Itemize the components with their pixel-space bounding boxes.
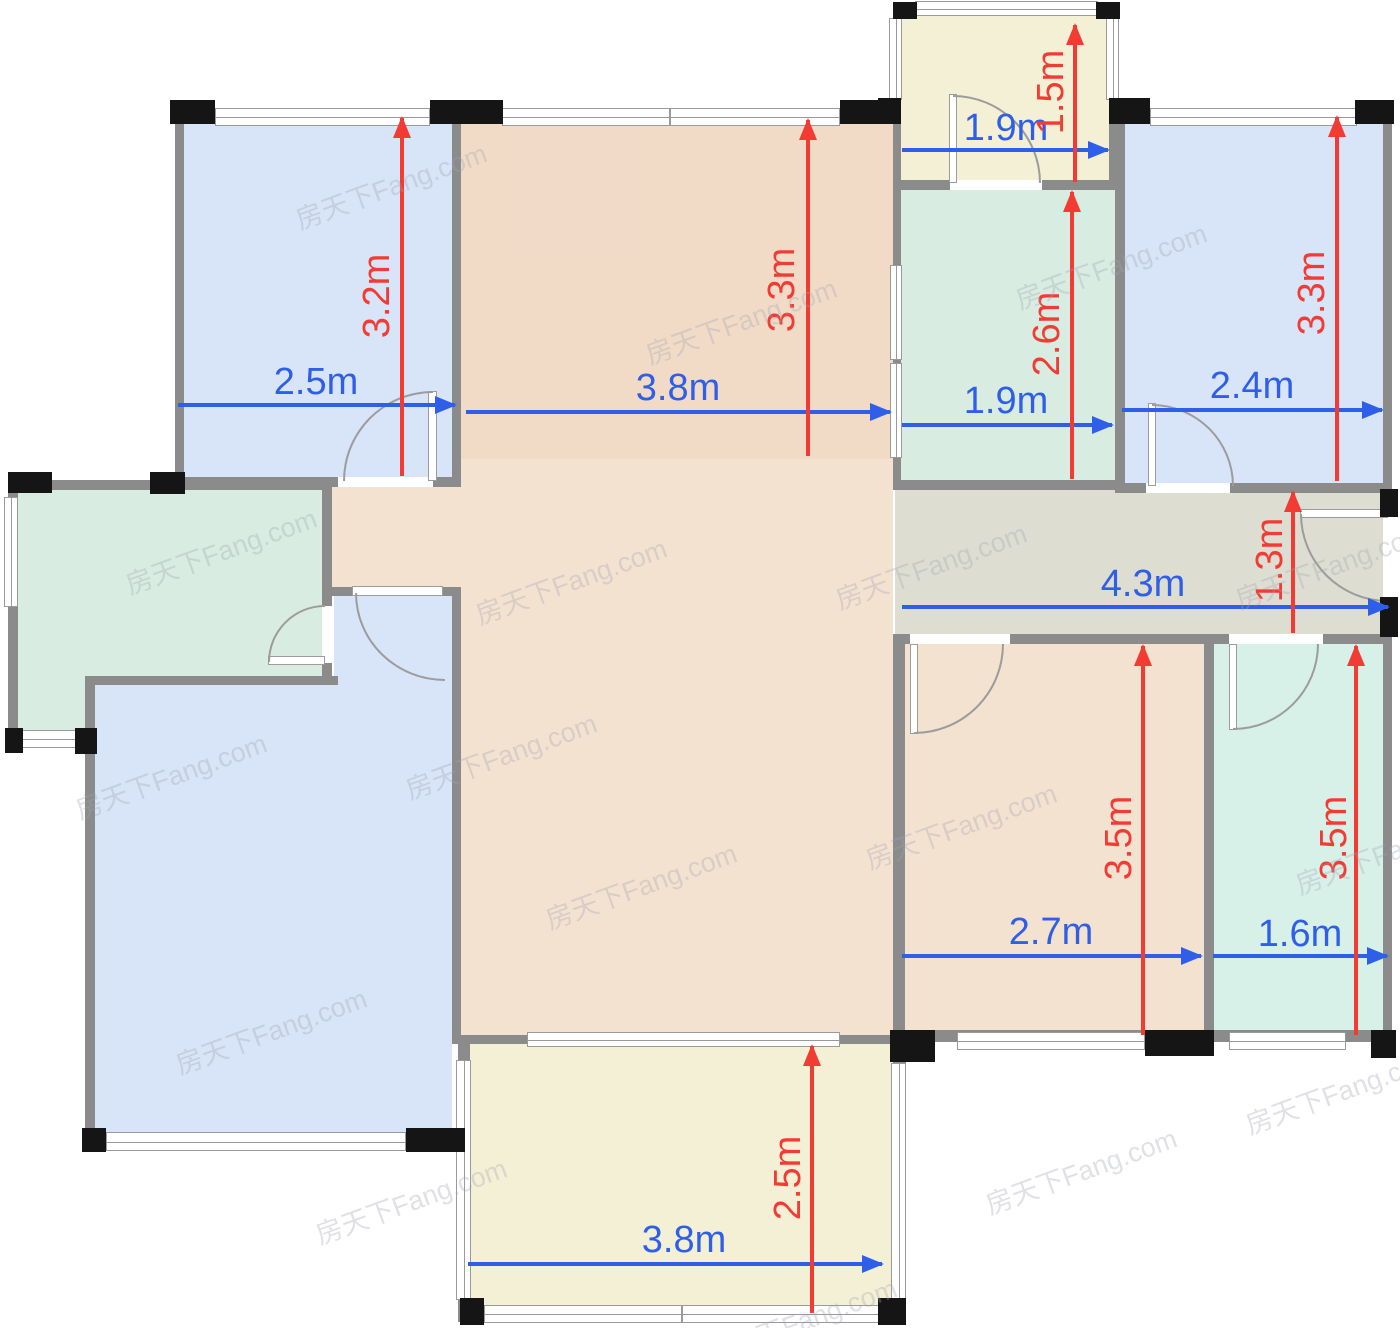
dim-label-bedroom-top-right-width: 2.4m (1210, 367, 1294, 405)
dim-label-bathroom-height: 2.6m (1028, 292, 1066, 376)
window (957, 1032, 1145, 1050)
dim-label-room-bottom-right-height: 3.5m (1315, 796, 1353, 880)
pillar (1145, 1030, 1214, 1056)
window (1106, 18, 1119, 100)
room-bedroom-bottom-left (95, 685, 452, 1137)
dim-arrow-living-height (806, 120, 810, 456)
dim-label-bedroom-bottom-middle-height: 3.5m (1100, 796, 1138, 880)
dim-label-bathroom-width: 1.9m (964, 382, 1048, 420)
pillar (878, 98, 901, 124)
window (1229, 1032, 1346, 1050)
dim-arrow-hallway-width (902, 605, 1388, 609)
dim-label-hallway-height: 1.3m (1251, 518, 1289, 602)
pillar (878, 1298, 906, 1325)
wall (1115, 113, 1125, 493)
window (4, 497, 18, 607)
wall (175, 113, 184, 486)
wall (452, 587, 461, 1044)
dim-arrow-living-width (466, 410, 890, 414)
dim-label-balcony-bottom-height: 2.5m (769, 1136, 807, 1220)
pillar (170, 100, 215, 124)
door-opening (910, 634, 1010, 644)
pillar (460, 1298, 484, 1325)
dim-label-balcony-top-height: 1.5m (1032, 50, 1070, 134)
pillar (890, 1030, 935, 1062)
pillar (430, 100, 503, 124)
dim-label-living-width: 3.8m (636, 369, 720, 407)
dim-label-bedroom-top-right-height: 3.3m (1293, 251, 1331, 335)
dim-arrow-bedroom-top-left-width (178, 403, 455, 407)
window (915, 1, 1098, 16)
wall (1204, 643, 1214, 1030)
dim-label-bedroom-top-left-height: 3.2m (358, 254, 396, 338)
dim-label-living-height: 3.3m (763, 248, 801, 332)
pillar (1371, 1030, 1396, 1058)
dim-label-hallway-width: 4.3m (1101, 565, 1185, 603)
pillar (82, 1128, 106, 1152)
dim-arrow-bedroom-top-left-height (400, 118, 404, 476)
dim-arrow-bedroom-bottom-middle-width (902, 954, 1201, 958)
window (527, 1032, 840, 1047)
wall (85, 676, 338, 685)
dim-label-room-bottom-right-width: 1.6m (1258, 915, 1342, 953)
floor-plan: 房天下Fang.com房天下Fang.com房天下Fang.com房天下Fang… (0, 0, 1400, 1328)
wall (1383, 113, 1392, 493)
window (891, 1063, 906, 1300)
dim-arrow-bedroom-top-right-height (1335, 117, 1339, 481)
window (890, 265, 902, 360)
window (502, 108, 670, 126)
dim-arrow-hallway-height (1291, 492, 1295, 633)
dim-arrow-balcony-top-height (1073, 25, 1077, 182)
pillar (1355, 100, 1394, 124)
door-opening (1229, 634, 1323, 644)
window (889, 18, 902, 100)
room-bathroom (901, 190, 1115, 480)
wall (452, 113, 461, 487)
wall (893, 634, 905, 1040)
pillar (150, 472, 185, 494)
wall (893, 480, 1115, 490)
window (1150, 108, 1357, 126)
dim-label-bedroom-top-left-width: 2.5m (274, 363, 358, 401)
dim-arrow-bathroom-height (1070, 192, 1074, 479)
dim-arrow-bedroom-top-right-width (1122, 408, 1382, 412)
dim-label-balcony-bottom-width: 3.8m (642, 1221, 726, 1259)
pillar (75, 728, 97, 754)
wall (1383, 637, 1392, 1032)
pillar (5, 728, 23, 753)
window (106, 1132, 406, 1151)
window (484, 1305, 682, 1323)
watermark: 房天下Fang.com (979, 1117, 1181, 1222)
pillar (1380, 489, 1398, 517)
dim-arrow-balcony-bottom-height (810, 1046, 814, 1313)
dim-label-bedroom-bottom-middle-width: 2.7m (1009, 913, 1093, 951)
dim-arrow-balcony-bottom-width (468, 1262, 882, 1266)
dim-arrow-bathroom-width (902, 423, 1112, 427)
pillar (406, 1128, 465, 1152)
room-balcony-bottom (470, 1044, 893, 1310)
dim-arrow-bedroom-bottom-middle-height (1141, 646, 1145, 1035)
pillar (1096, 2, 1120, 19)
pillar (893, 2, 917, 19)
pillar (8, 472, 52, 493)
pillar (1109, 98, 1150, 124)
room-kitchen-leg (18, 676, 85, 733)
room-corridor (332, 487, 461, 587)
window (16, 730, 80, 748)
window (682, 1305, 880, 1323)
